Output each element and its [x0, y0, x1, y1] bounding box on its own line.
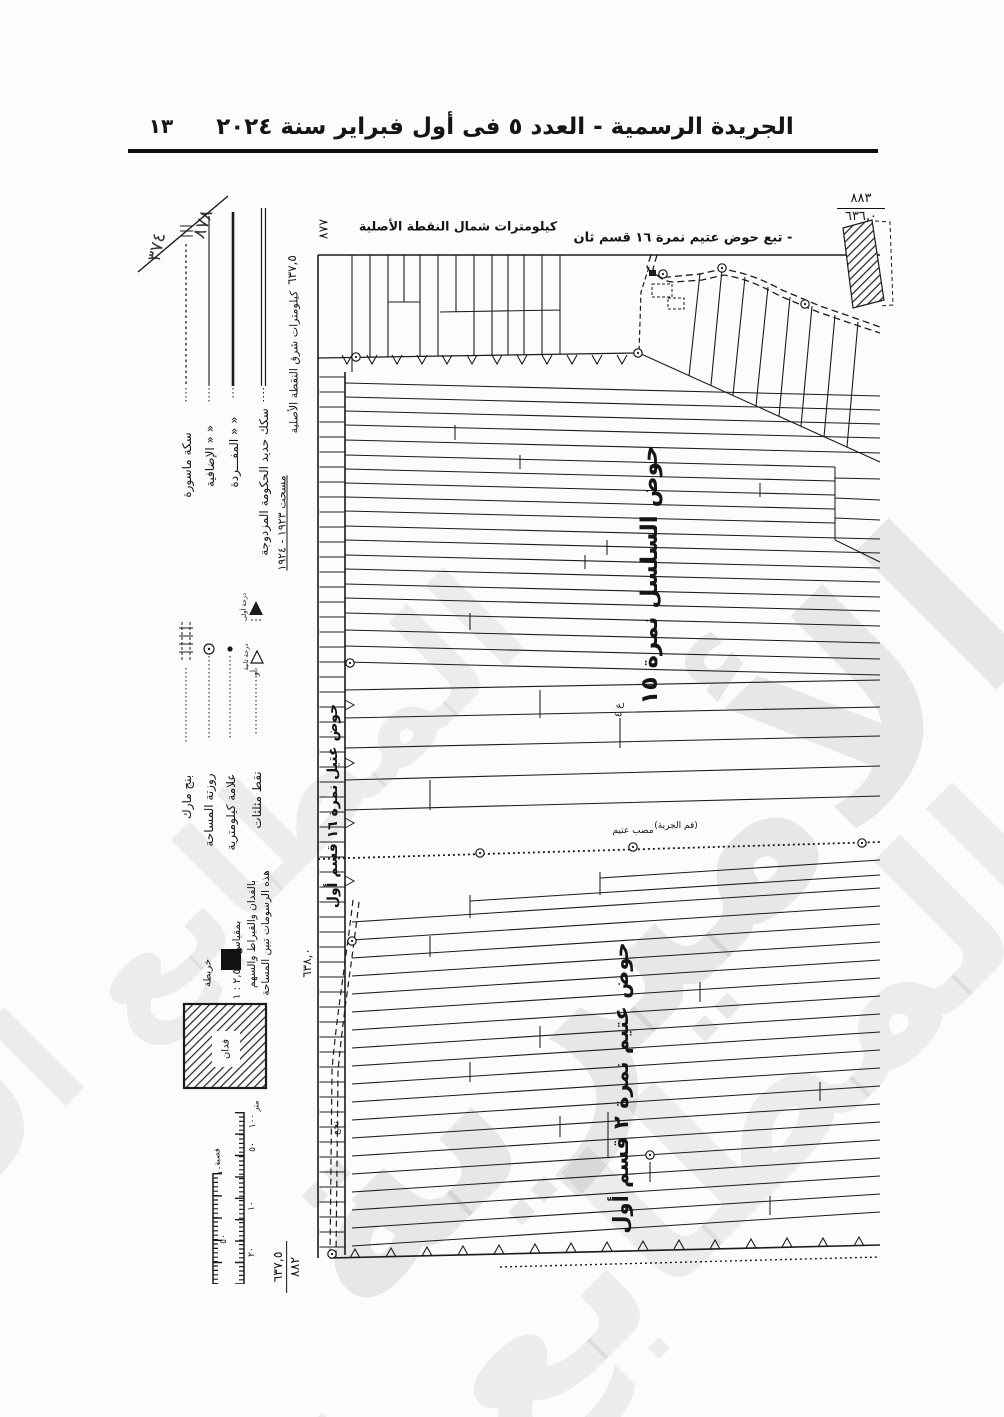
legend-railway-single: « « المفـــردة	[227, 416, 241, 487]
feddan-square-label: فدان	[221, 1039, 232, 1059]
ruler1-tick-20: ٢٠	[247, 1247, 257, 1257]
grid-north-value: ٨٧٧	[316, 219, 331, 239]
legend-railway-double: سكك حديد الحكومة المزدوجة	[257, 408, 271, 556]
ruler1-tick-10: ١٠	[247, 1201, 257, 1211]
ruler1-tick-50: ٥٠	[248, 1142, 258, 1152]
gazette-scan-page: المطابع الأميرية المطابع الأميرية المطاب…	[0, 0, 1004, 1417]
map-scale-note: بمقياس ٢,٥٠٠ : ١	[231, 921, 243, 1000]
area-note-line-1: هذه الرسومات تبين المساحة	[260, 870, 272, 996]
legend-pipe-line: سكة ماسورة	[180, 432, 194, 497]
legend-survey-rosette: روزتة المساحة	[202, 773, 216, 846]
corner-ref-top-right: ٨٨٣ ٦٣٦,٠	[837, 192, 885, 225]
hamlet-label: نجع	[331, 1121, 342, 1135]
grid-east-value-1: ٦٣٧,٥	[285, 255, 299, 285]
survey-date-note: مسحت ١٩٢٣ - ١٩٢٤	[276, 475, 289, 570]
ruler2-tick-50: ٥٠	[219, 1234, 229, 1244]
hod-label-salsal-15: حوض السلسل نمرة ١٥	[637, 445, 663, 704]
parcel-mark-label: ع ٤	[614, 703, 625, 718]
grid-east-label: كيلومترات شرق النقطة الأصلية	[288, 291, 301, 434]
legend-or-word: أو	[251, 670, 260, 676]
legend-bench-mark: بنج مارك	[180, 775, 194, 819]
corner-ref-bottom-left: ٦٣٧,٥ ٨٨٢	[271, 1241, 303, 1293]
triangle-caption-first-order: درجة أولى	[240, 593, 248, 621]
hod-label-eteil-16-sec1: حوض عتيل نمرة ١٦ قسم أول	[325, 704, 341, 908]
hod-label-eteam-2-sec1: حوض عتيم نمرة ٢ قسم أول	[609, 942, 633, 1233]
grid-east-value-2: ٦٣٨,٠	[300, 948, 314, 978]
ruler-meters-unit: متر	[252, 1100, 261, 1111]
hod-top-note: - تبع حوض عتيم نمرة ١٦ قسم ثان	[574, 231, 793, 246]
legend-railway-light: « « الإضافية	[203, 425, 217, 487]
legend-triangulation-points: نقط مثلثات	[250, 771, 264, 828]
sheet-symbol-label: خريطة	[203, 959, 214, 987]
triangle-caption-second-order: درجة ثانية	[242, 644, 250, 671]
ruler2-tick-100: ١٠٠	[215, 1161, 225, 1176]
masab-note: مصب عتيم	[612, 826, 653, 836]
ruler1-tick-100: ١٠٠	[248, 1114, 258, 1129]
corner-bl-north: ٨٨٢	[289, 1257, 303, 1277]
corner-tr-east: ٦٣٦,٠	[845, 210, 877, 225]
corner-bl-east: ٦٣٧,٥	[271, 1252, 285, 1283]
corner-tr-north: ٨٨٣	[851, 192, 872, 207]
grid-north-label: كيلومترات شمال النقطة الأصلية	[359, 219, 557, 234]
canal-note: (قم الجرية)	[654, 821, 698, 831]
legend-kilometric-mark: علامة كيلومترية	[224, 774, 238, 851]
area-note-line-2: بالفدان والقيراط والسهم	[246, 880, 258, 988]
